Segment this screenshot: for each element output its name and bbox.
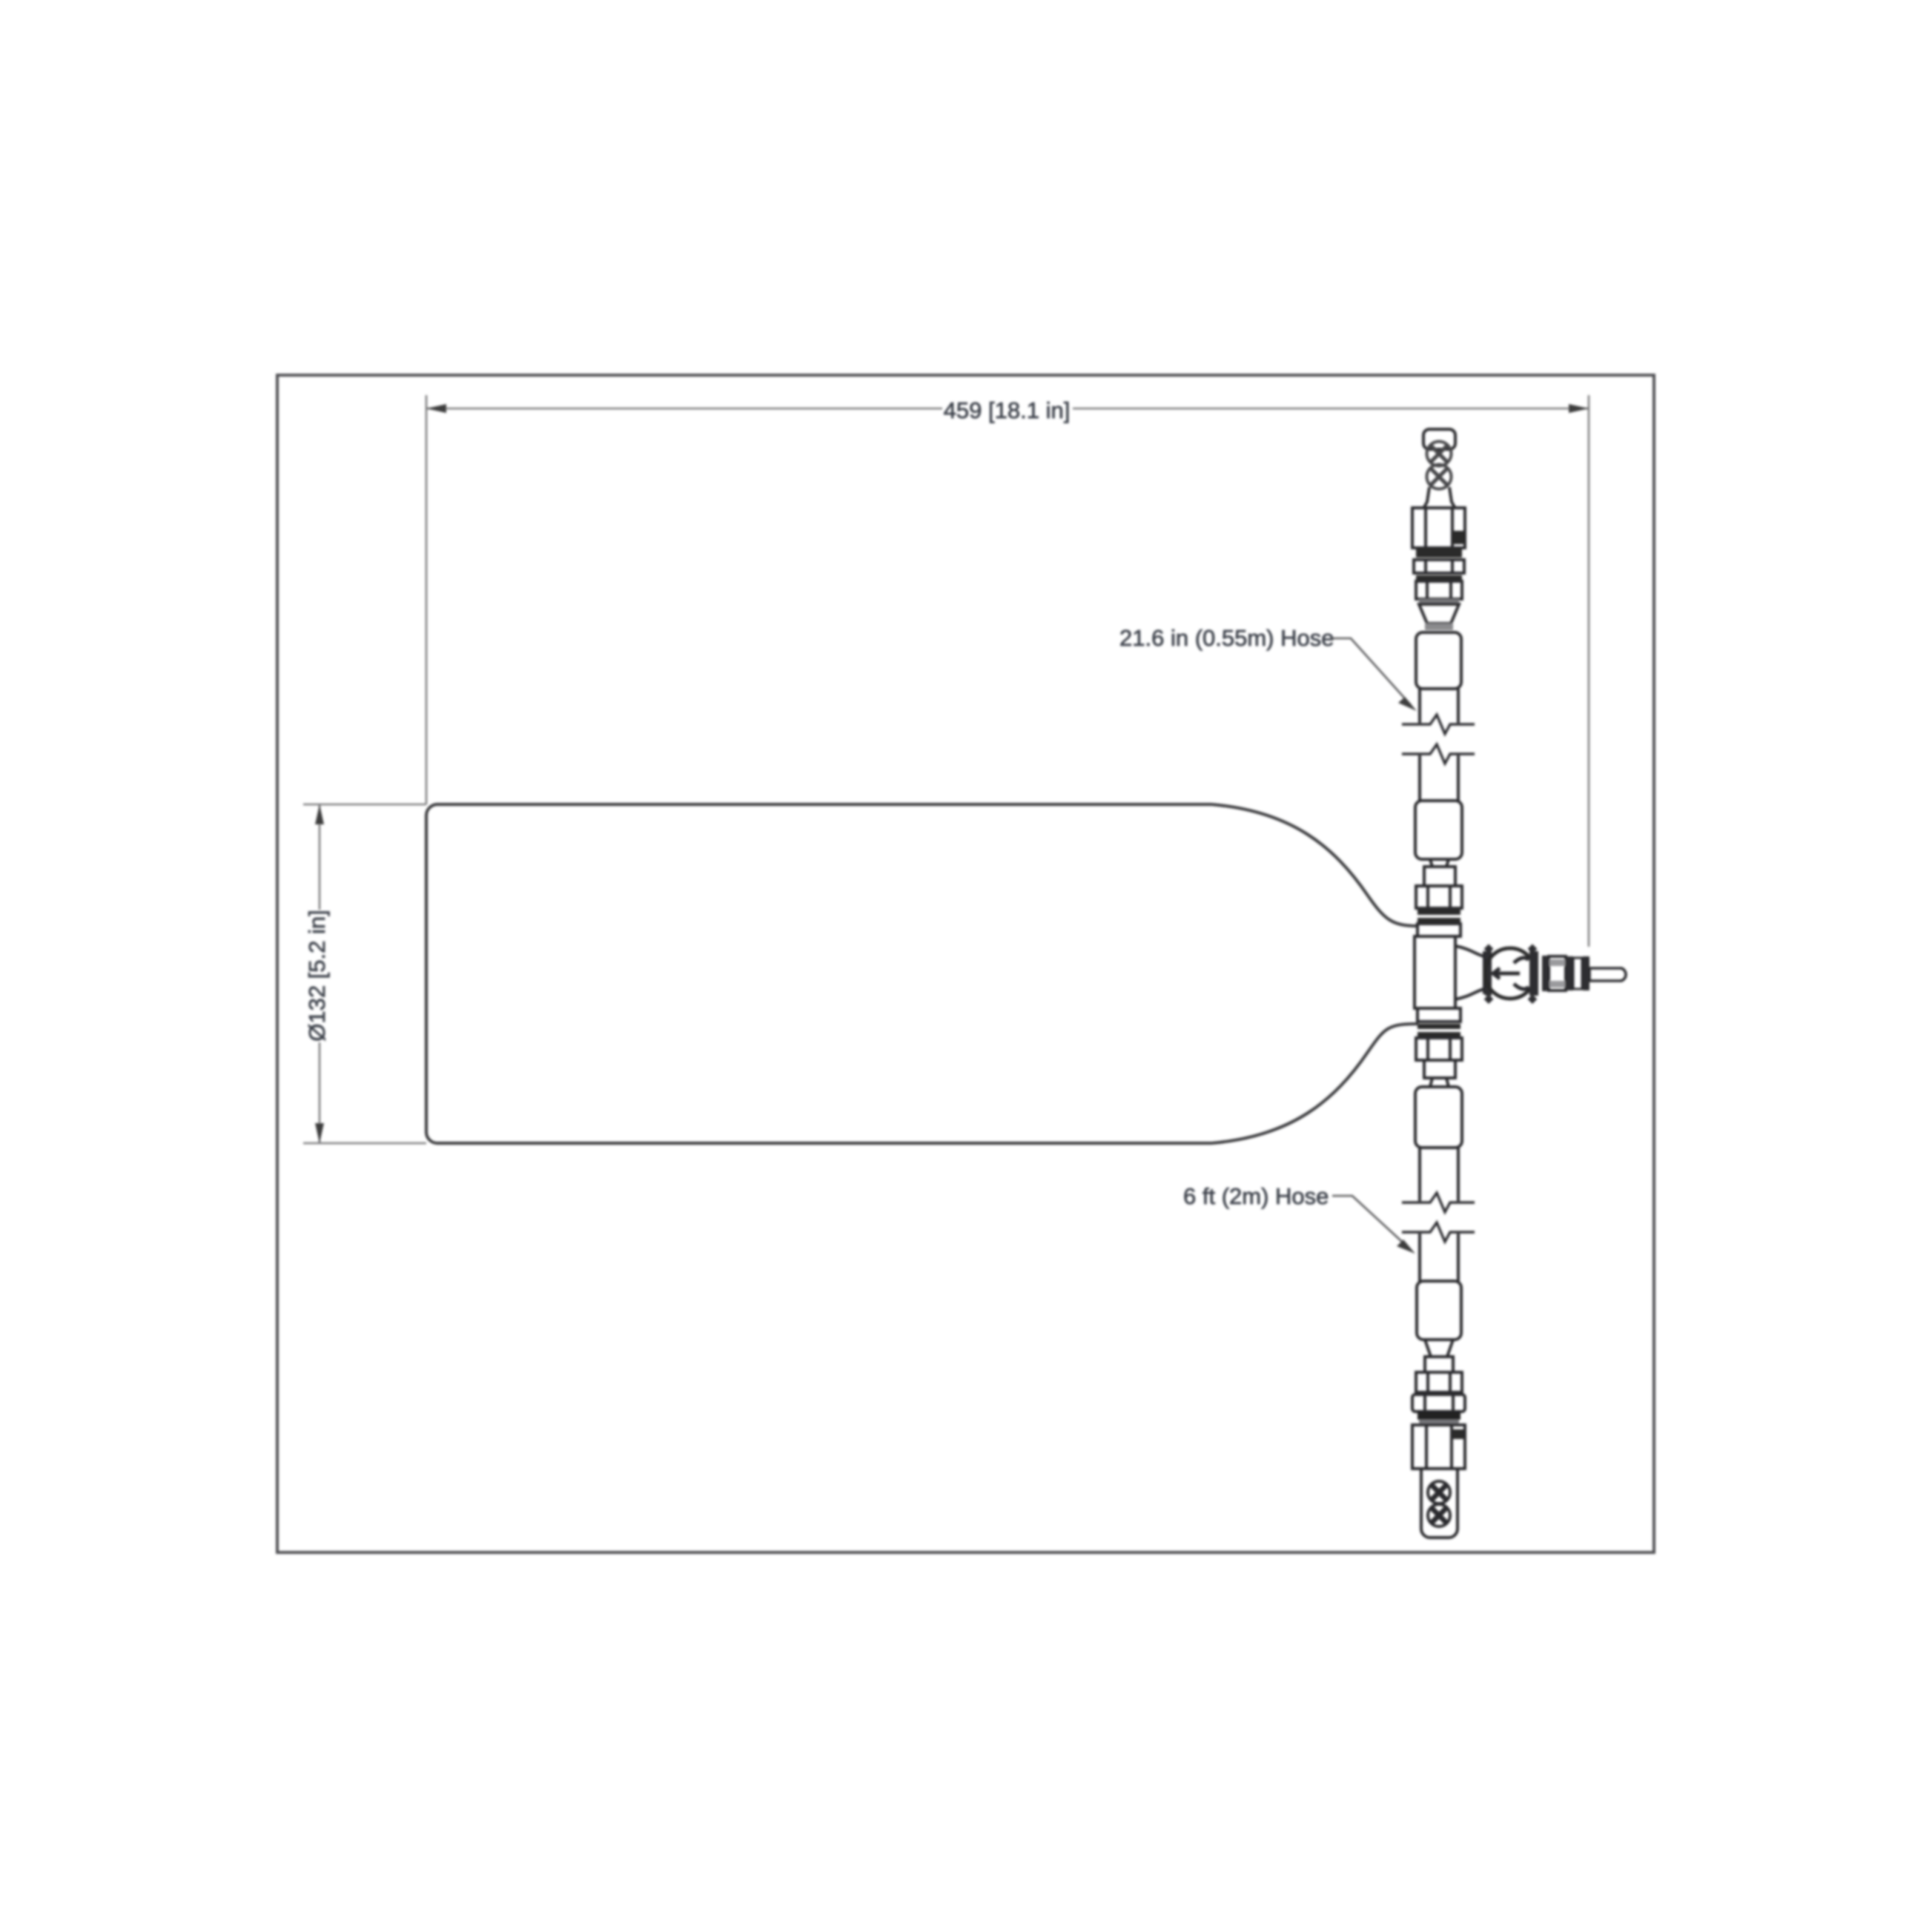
svg-text:459 [18.1 in]: 459 [18.1 in] xyxy=(944,397,1071,423)
svg-text:6 ft (2m) Hose: 6 ft (2m) Hose xyxy=(1183,1183,1329,1209)
svg-text:21.6 in (0.55m) Hose: 21.6 in (0.55m) Hose xyxy=(1119,625,1334,651)
svg-text:Ø132 [5.2 in]: Ø132 [5.2 in] xyxy=(304,910,330,1042)
